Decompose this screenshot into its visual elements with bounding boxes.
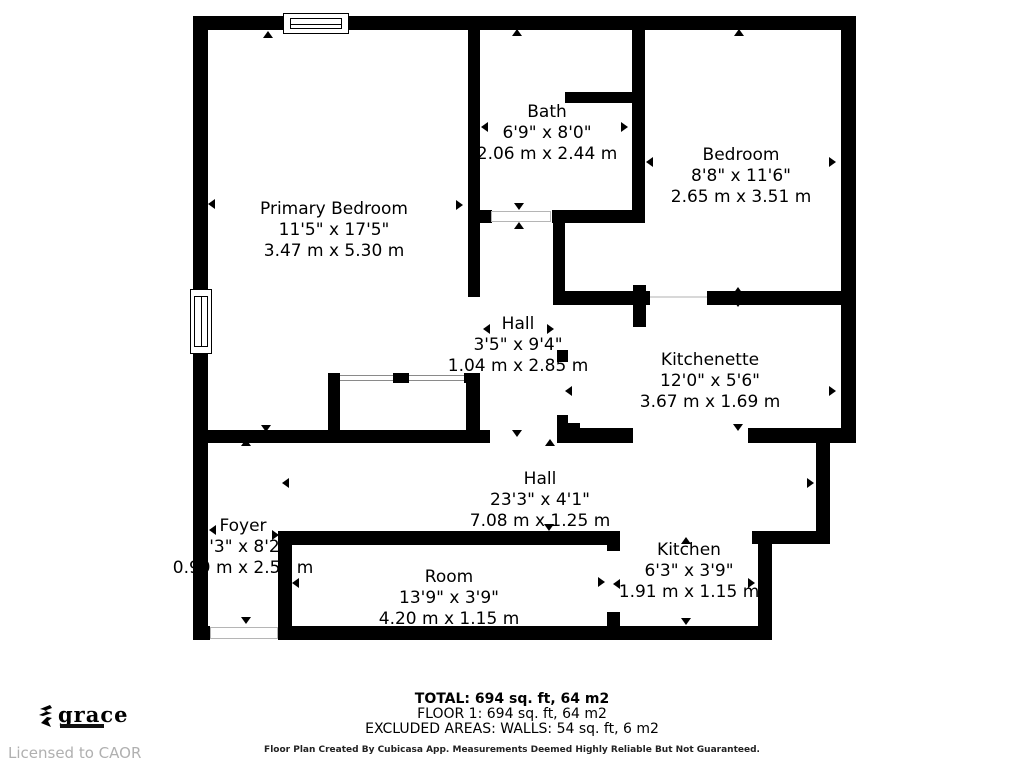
license-text: Licensed to CAOR [8, 744, 141, 762]
arrow-icon [734, 29, 744, 36]
arrow-icon [261, 425, 271, 432]
wall-segment [607, 531, 620, 551]
room-name: Hall [470, 469, 611, 490]
arrow-icon [282, 478, 289, 488]
arrow-icon [621, 122, 628, 132]
wall-segment [552, 210, 644, 223]
room-label-hall-upper: Hall 3'5" x 9'4" 1.04 m x 2.85 m [448, 314, 589, 377]
arrow-icon [545, 439, 555, 446]
room-label-primary-bedroom: Primary Bedroom 11'5" x 17'5" 3.47 m x 5… [260, 199, 408, 262]
arrow-icon [613, 579, 620, 589]
wall-segment [278, 626, 772, 640]
grace-logo-tagline [60, 724, 104, 728]
door-opening-line [650, 296, 707, 298]
wall-segment [816, 442, 830, 534]
room-dimensions-metric: 3.67 m x 1.69 m [640, 392, 781, 413]
room-label-kitchenette: Kitchenette 12'0" x 5'6" 3.67 m x 1.69 m [640, 350, 781, 413]
area-summary: TOTAL: 694 sq. ft, 64 m2 FLOOR 1: 694 sq… [0, 692, 1024, 755]
room-dimensions-metric: 2.65 m x 3.51 m [671, 187, 812, 208]
arrow-icon [598, 577, 605, 587]
room-name: Room [379, 567, 520, 588]
wall-segment [758, 544, 772, 638]
room-label-kitchen: Kitchen 6'3" x 3'9" 1.91 m x 1.15 m [619, 540, 760, 603]
room-name: Primary Bedroom [260, 199, 408, 220]
floor1-area-text: FLOOR 1: 694 sq. ft, 64 m2 [0, 707, 1024, 721]
wall-segment [193, 430, 490, 443]
room-dimensions-metric: 7.08 m x 1.25 m [470, 511, 611, 532]
wall-segment [557, 350, 568, 362]
room-label-room: Room 13'9" x 3'9" 4.20 m x 1.15 m [379, 567, 520, 630]
floor-plan: Primary Bedroom 11'5" x 17'5" 3.47 m x 5… [0, 0, 1024, 768]
arrow-icon [209, 525, 216, 535]
room-name: Kitchenette [640, 350, 781, 371]
room-dimensions-imperial: 23'3" x 4'1" [470, 490, 611, 511]
arrow-icon [483, 324, 490, 334]
wall-segment [633, 285, 646, 327]
wall-segment [468, 30, 480, 297]
window-icon [283, 13, 349, 34]
arrow-icon [829, 386, 836, 396]
arrow-icon [807, 478, 814, 488]
arrow-icon [547, 324, 554, 334]
bath-door-icon [491, 211, 551, 222]
room-dimensions-metric: 2.06 m x 2.44 m [477, 144, 618, 165]
room-dimensions-imperial: 6'9" x 8'0" [477, 123, 618, 144]
arrow-icon [733, 300, 743, 307]
wall-segment [328, 373, 340, 433]
arrow-icon [748, 578, 755, 588]
arrow-icon [456, 200, 463, 210]
arrow-icon [241, 439, 251, 446]
excluded-area-text: EXCLUDED AREAS: WALLS: 54 sq. ft, 6 m2 [0, 722, 1024, 736]
arrow-icon [292, 578, 299, 588]
arrow-icon [241, 617, 251, 624]
room-name: Bath [477, 102, 618, 123]
wall-segment [748, 428, 856, 443]
arrow-icon [512, 430, 522, 437]
arrow-icon [443, 537, 453, 544]
arrow-icon [681, 618, 691, 625]
room-label-bedroom: Bedroom 8'8" x 11'6" 2.65 m x 3.51 m [671, 145, 812, 208]
wall-segment [393, 373, 409, 383]
room-dimensions-metric: 1.91 m x 1.15 m [619, 582, 760, 603]
wall-segment [752, 531, 830, 544]
total-area-text: TOTAL: 694 sq. ft, 64 m2 [0, 692, 1024, 706]
room-dimensions-imperial: 11'5" x 17'5" [260, 220, 408, 241]
wall-segment [193, 626, 210, 640]
entry-door-icon [210, 627, 278, 639]
arrow-icon [481, 122, 488, 132]
wall-segment [557, 428, 633, 443]
wall-segment [468, 210, 492, 223]
room-dimensions-imperial: 13'9" x 3'9" [379, 588, 520, 609]
disclaimer-text: Floor Plan Created By Cubicasa App. Meas… [0, 745, 1024, 755]
room-name: Hall [448, 314, 589, 335]
arrow-icon [544, 524, 554, 531]
arrow-icon [514, 222, 524, 229]
arrow-icon [733, 424, 743, 431]
grace-logo-icon [38, 705, 54, 727]
wall-segment [565, 92, 633, 103]
arrow-icon [681, 537, 691, 544]
room-label-bath: Bath 6'9" x 8'0" 2.06 m x 2.44 m [477, 102, 618, 165]
room-name: Bedroom [671, 145, 812, 166]
wall-segment [464, 373, 480, 383]
arrow-icon [512, 29, 522, 36]
arrow-icon [565, 386, 572, 396]
wall-segment [707, 291, 856, 305]
room-dimensions-imperial: 12'0" x 5'6" [640, 371, 781, 392]
room-label-hall-lower: Hall 23'3" x 4'1" 7.08 m x 1.25 m [470, 469, 611, 532]
room-dimensions-metric: 3.47 m x 5.30 m [260, 241, 408, 262]
arrow-icon [733, 287, 743, 294]
arrow-icon [208, 199, 215, 209]
room-dimensions-imperial: 8'8" x 11'6" [671, 166, 812, 187]
wall-segment [278, 531, 292, 639]
room-dimensions-imperial: 6'3" x 3'9" [619, 561, 760, 582]
wall-segment [841, 16, 856, 443]
window-icon [190, 289, 212, 354]
arrow-icon [263, 31, 273, 38]
wall-segment [632, 30, 645, 223]
arrow-icon [829, 157, 836, 167]
arrow-icon [646, 157, 653, 167]
arrow-icon [272, 530, 279, 540]
arrow-icon [514, 203, 524, 210]
